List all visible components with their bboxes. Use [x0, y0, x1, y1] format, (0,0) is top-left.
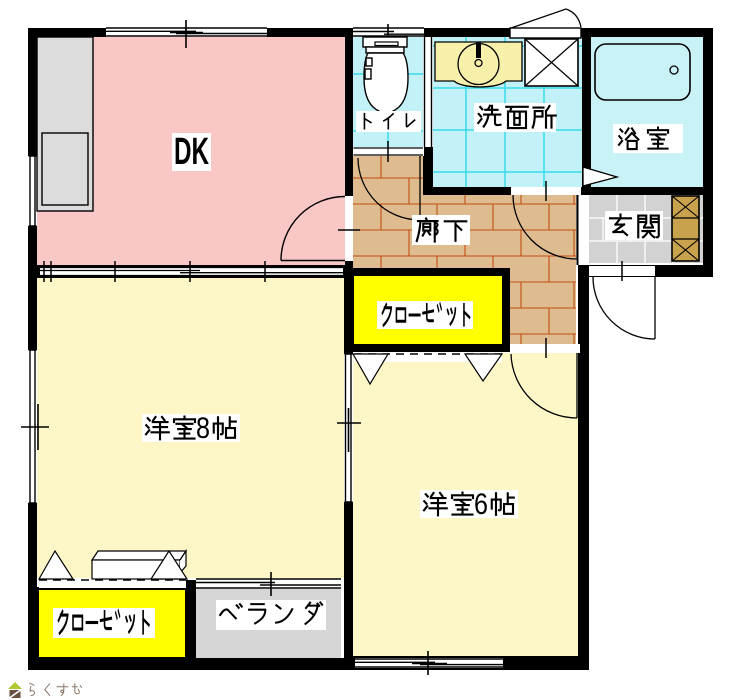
svg-text:6: 6: [474, 488, 488, 521]
svg-text:8: 8: [196, 412, 210, 445]
svg-text:DK: DK: [174, 131, 209, 173]
